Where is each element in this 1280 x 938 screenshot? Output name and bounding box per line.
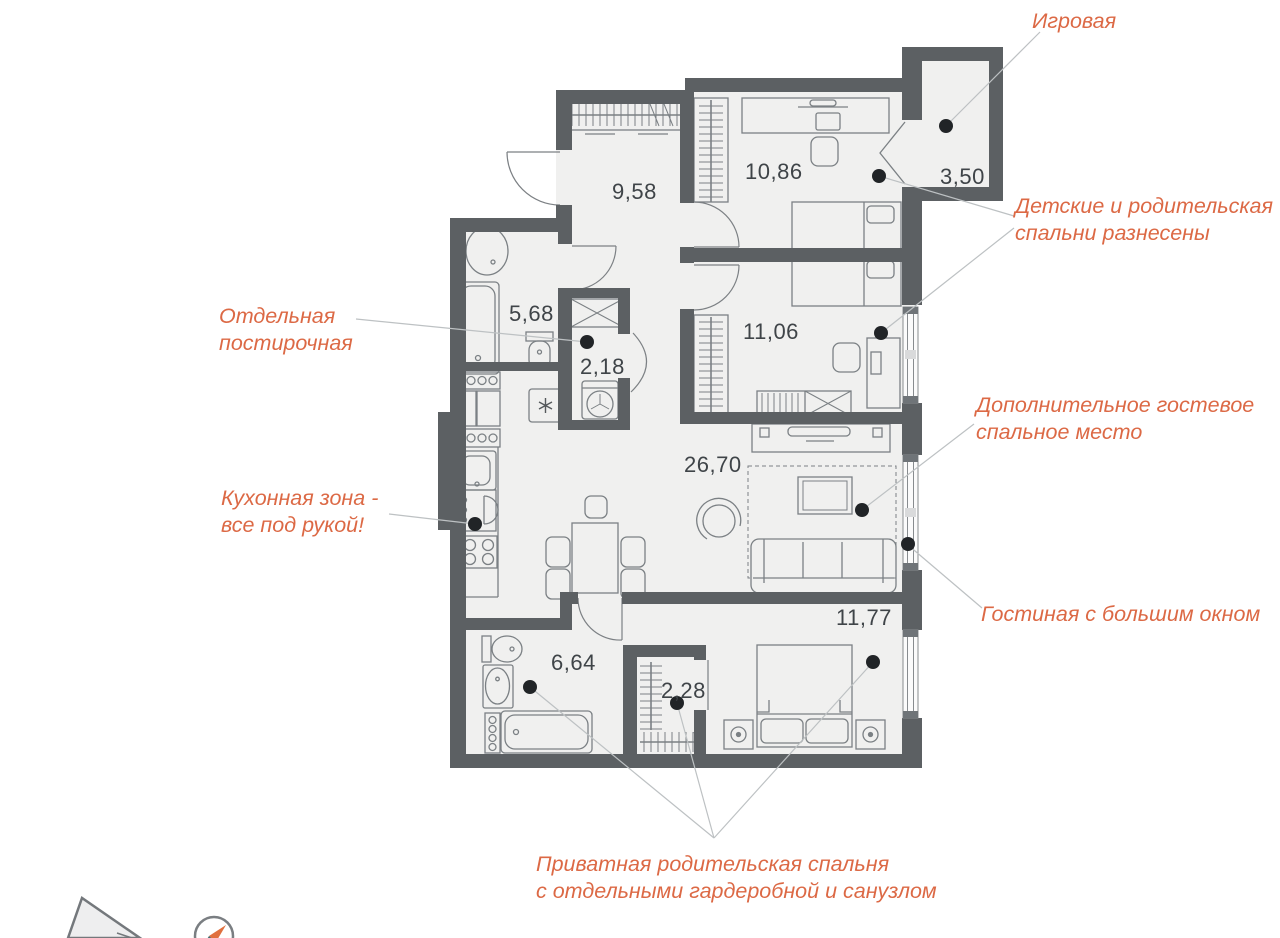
room-area-children-bedroom-2: 11,06 bbox=[743, 319, 799, 345]
windows bbox=[903, 307, 918, 718]
floor-plan-page: 9,58 10,86 3,50 5,68 2,18 11,06 26,70 6,… bbox=[0, 0, 1280, 938]
annotation-laundry: Отдельная постирочная bbox=[219, 303, 353, 357]
annotation-private-master: Приватная родительская спальня с отдельн… bbox=[536, 851, 937, 905]
entry-door-swing bbox=[507, 152, 560, 205]
room-area-hallway: 9,58 bbox=[612, 179, 657, 205]
room-area-bathroom: 5,68 bbox=[509, 301, 554, 327]
room-area-children-bedroom-1: 10,86 bbox=[745, 159, 803, 185]
room-area-master-wardrobe: 2,28 bbox=[661, 678, 706, 704]
room-area-master-bathroom: 6,64 bbox=[551, 650, 596, 676]
annotation-living-window: Гостиная с большим окном bbox=[981, 601, 1260, 628]
floor-plan-svg bbox=[0, 0, 1280, 938]
annotation-playroom: Игровая bbox=[1032, 8, 1116, 35]
room-area-master-bedroom: 11,77 bbox=[836, 605, 892, 631]
room-area-playroom: 3,50 bbox=[940, 164, 985, 190]
window bbox=[903, 630, 918, 718]
room-area-laundry: 2,18 bbox=[580, 354, 625, 380]
annotation-kitchen: Кухонная зона - все под рукой! bbox=[221, 485, 378, 539]
room-area-living-kitchen: 26,70 bbox=[684, 452, 742, 478]
annotation-separated-bedrooms: Детские и родительская спальни разнесены bbox=[1015, 193, 1273, 247]
window bbox=[903, 307, 918, 403]
annotation-guest-sleeping: Дополнительное гостевое спальное место bbox=[976, 392, 1254, 446]
compass-icon bbox=[195, 917, 233, 938]
building-footprint-icon bbox=[68, 898, 140, 938]
